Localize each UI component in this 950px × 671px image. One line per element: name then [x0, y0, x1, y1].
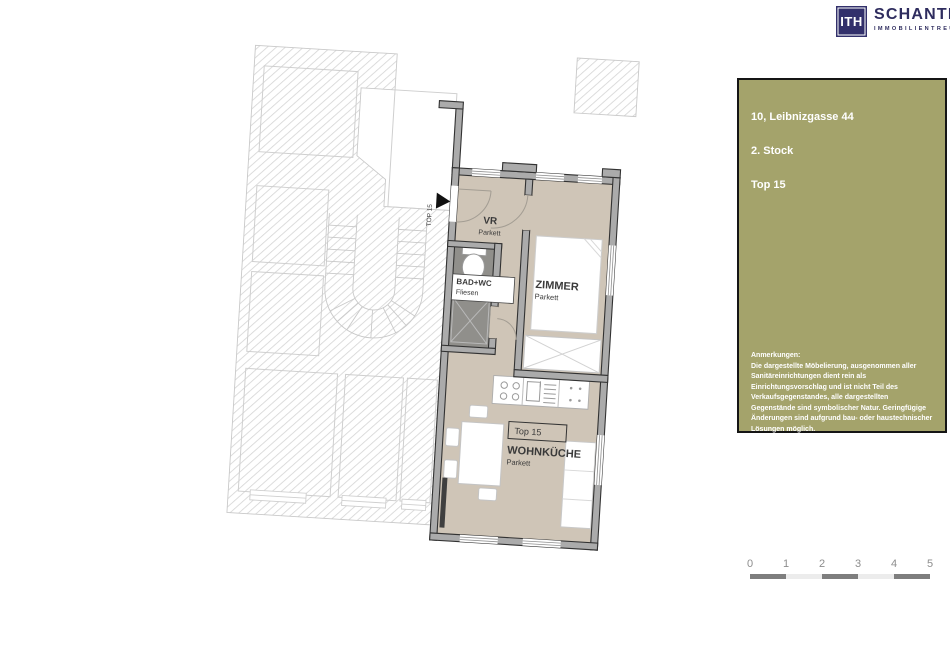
dining-table-icon: [458, 422, 504, 486]
neighbor-area-top-right: [574, 58, 639, 117]
scale-label-4: 4: [891, 558, 897, 570]
company-logo: ITH SCHANTL IMMOBILIENTREUHAND: [836, 6, 950, 37]
scale-label-1: 1: [783, 558, 789, 570]
scale-label-5: 5: [927, 558, 933, 570]
room-wohnkueche-floor-label: Parkett: [506, 457, 531, 467]
floor-plan: TOP 15 VR Parkett ZIMMER Parkett BAD+WC …: [230, 40, 660, 580]
property-info-panel: 10, Leibnizgasse 44 2. Stock Top 15 Anme…: [737, 78, 947, 433]
room-vr-label: VR: [483, 216, 498, 228]
logo-ith-icon: ITH: [836, 6, 867, 37]
room-bad-labelbox: BAD+WC Fliesen: [451, 274, 514, 304]
room-vr-floor-label: Parkett: [478, 229, 501, 237]
unit-label: Top 15: [514, 426, 542, 438]
neighbor-area-hatched: [227, 45, 459, 525]
entrance-label: TOP 15: [426, 204, 434, 227]
property-address: 10, Leibnizgasse 44 2. Stock Top 15: [751, 92, 933, 211]
address-floor: 2. Stock: [751, 143, 933, 160]
scale-label-2: 2: [819, 558, 825, 570]
address-street: 10, Leibnizgasse 44: [751, 109, 933, 126]
chair-icon: [478, 488, 497, 501]
chair-icon: [443, 460, 457, 479]
notes-block: Anmerkungen: Die dargestellte Möbelierun…: [751, 351, 933, 525]
scale-bar: 0 1 2 3 4 5: [750, 558, 940, 584]
room-bad-floor-label: Fliesen: [456, 289, 479, 297]
entrance-arrow-icon: [436, 193, 451, 210]
room-zimmer-floor-label: Parkett: [534, 292, 559, 302]
note-paragraph-2: Die Flächenangaben sind ungefähre Angabe…: [751, 443, 933, 475]
logo-company-name: SCHANTL: [874, 6, 950, 24]
address-unit: Top 15: [751, 177, 933, 194]
scale-label-0: 0: [747, 558, 753, 570]
chair-icon: [445, 428, 459, 447]
chair-icon: [469, 405, 488, 418]
logo-text-block: SCHANTL IMMOBILIENTREUHAND: [874, 6, 950, 32]
wardrobe-icon: [523, 335, 601, 373]
note-paragraph-3: Der abgebildete Plan gilt vorbehaltlich …: [751, 483, 933, 525]
logo-company-subtitle: IMMOBILIENTREUHAND: [874, 26, 950, 32]
notes-title: Anmerkungen:: [751, 351, 933, 362]
note-paragraph-1: Die dargestellte Möbelierung, ausgenomme…: [751, 362, 933, 436]
scale-label-3: 3: [855, 558, 861, 570]
scale-bar-segments: [750, 574, 930, 579]
